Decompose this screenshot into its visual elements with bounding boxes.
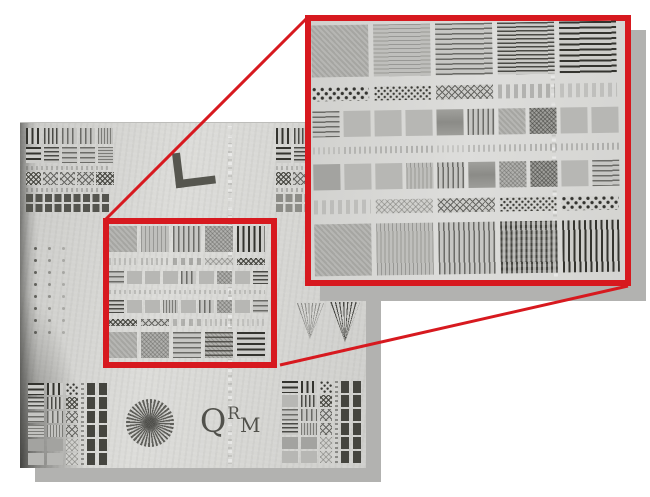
p-hlines-pattern (80, 147, 95, 163)
p-lattice-d-pattern (320, 395, 332, 407)
p-hbars-pattern (282, 423, 298, 435)
p-vlines-vf-pattern (406, 163, 433, 189)
inset-pattern-grid-row (313, 160, 625, 191)
p-hlines-f-pattern (28, 425, 44, 437)
p-noise-pattern (499, 161, 526, 187)
p-plain-pattern (343, 111, 370, 137)
p-dot-pattern (62, 271, 65, 274)
p-plain-pattern (344, 164, 371, 190)
p-textrow-pattern (344, 147, 371, 154)
p-lattice-pattern (43, 172, 58, 185)
p-dot-pattern (62, 307, 65, 310)
p-vlines-f-pattern (98, 128, 113, 144)
top-left-pattern-group-row (26, 128, 112, 144)
p-lattice-pattern (320, 423, 332, 435)
p-lattice-pattern (60, 172, 75, 185)
p-tick-pattern (335, 395, 338, 407)
p-dash-pattern (560, 83, 617, 98)
p-hbars-pattern (497, 22, 555, 75)
p-dot-pattern (34, 271, 37, 274)
p-lattice-pattern (66, 411, 78, 423)
p-pair-d-pattern (341, 395, 363, 407)
top-left-pattern-group-row (26, 188, 112, 192)
p-hbars-d-pattern (282, 381, 298, 393)
p-plain-d-pattern (28, 439, 44, 451)
p-hlines-pattern (435, 23, 493, 76)
p-dot-pattern (34, 247, 37, 250)
p-hbars-d-pattern (559, 21, 617, 74)
bottom-left-pattern-group-row (28, 439, 112, 451)
p-dot-pattern (62, 331, 65, 334)
p-textrow-pattern (313, 147, 340, 154)
p-vbars-pattern (44, 128, 59, 144)
p-plain-pattern (301, 451, 317, 463)
p-hlines-f-pattern (98, 147, 113, 163)
qrm-letter-r: R (227, 406, 240, 423)
p-dot-pattern (34, 331, 37, 334)
p-hlines-pattern (28, 411, 44, 423)
p-pair-d-pattern (87, 425, 109, 437)
p-dot-pattern (62, 319, 65, 322)
p-hbars-d-pattern (26, 147, 41, 163)
p-dot-pattern (62, 247, 65, 250)
qrm-letter-m: M (240, 415, 260, 435)
p-tick-pattern (335, 423, 338, 435)
p-sqrow-pattern (26, 194, 110, 202)
p-textrow-pattern (375, 146, 402, 153)
p-pair-d-pattern (341, 423, 363, 435)
p-dots-s-pattern (374, 86, 431, 101)
p-hlines-pattern (282, 409, 298, 421)
left-dot-column-row (34, 247, 74, 250)
top-left-pattern-group-row (26, 172, 112, 185)
p-dot-pattern (48, 271, 51, 274)
p-dot-pattern (48, 259, 51, 262)
p-blur-d-pattern (468, 162, 495, 188)
top-left-pattern-group-row (26, 147, 112, 163)
inset-pattern-grid-row (312, 107, 624, 138)
p-hbars-d-pattern (276, 147, 291, 163)
p-dot-pattern (62, 283, 65, 286)
p-lattice-d-pattern (96, 172, 114, 185)
inset-pattern-grid-row (314, 220, 627, 277)
p-vbars-pattern (301, 395, 317, 407)
p-tick-pattern (81, 411, 84, 423)
p-textrow-pattern (592, 143, 619, 150)
p-plain-pattern (561, 160, 588, 186)
p-tick-pattern (81, 425, 84, 437)
p-plain-pattern (405, 110, 432, 136)
highlight-rectangle (103, 218, 277, 368)
p-textrow-pattern (406, 146, 433, 153)
left-dot-column-row (34, 331, 74, 334)
p-dots-pattern (312, 87, 369, 102)
p-lattice-pattern (320, 409, 332, 421)
p-lattice-pattern (436, 85, 493, 100)
p-lattice-d-pattern (276, 172, 291, 185)
p-plain-n-pattern (498, 108, 525, 134)
bottom-right-pattern-group-row (282, 451, 366, 463)
p-vlines-pattern (301, 409, 317, 421)
p-plain-pattern (28, 453, 44, 465)
bottom-left-pattern-group-row (28, 453, 112, 465)
p-dots-s-pattern (320, 381, 332, 393)
p-dot-pattern (48, 307, 51, 310)
p-vlines-pattern (47, 411, 63, 423)
left-dot-column-row (34, 307, 74, 310)
p-textrow-pattern (561, 143, 588, 150)
bottom-right-pattern-group-row (282, 381, 366, 393)
p-vlines-vf-pattern (376, 223, 434, 276)
siemens-star-pattern (126, 399, 174, 447)
p-vlines-pattern (467, 109, 494, 135)
p-hbars-pattern (28, 397, 44, 409)
p-dot-pattern (34, 295, 37, 298)
top-left-pattern-group-row (26, 194, 112, 202)
p-lattice-d-pattern (26, 172, 41, 185)
p-plain-pattern (375, 163, 402, 189)
p-hbars-d-pattern (28, 383, 44, 395)
bottom-right-pattern-group (282, 381, 366, 465)
bottom-right-pattern-group-row (282, 423, 366, 435)
p-vbars-d-pattern (47, 383, 63, 395)
p-dot-pattern (34, 319, 37, 322)
p-vlines-pattern (80, 128, 95, 144)
p-lattice-f-pattern (320, 451, 332, 463)
p-blur-d-pattern (436, 109, 463, 135)
p-textrow-pattern (530, 144, 557, 151)
p-lattice-d-pattern (66, 397, 78, 409)
p-pair-d-pattern (341, 409, 363, 421)
p-plain-pattern (374, 110, 401, 136)
qrm-logo: Q R M (200, 405, 261, 437)
p-lattice-pattern (66, 425, 78, 437)
left-dot-column-row (34, 283, 74, 286)
p-dots-s-pattern (66, 383, 78, 395)
inset-pattern-grid (311, 21, 627, 282)
bottom-left-pattern-group-row (28, 425, 112, 437)
p-textrow-pattern (437, 145, 464, 152)
p-plain-pattern (560, 107, 587, 133)
p-tick-pattern (81, 453, 84, 465)
p-plain-n-pattern (314, 224, 372, 277)
bottom-right-pattern-group-row (282, 395, 366, 407)
p-tick-pattern (335, 409, 338, 421)
p-hlines-vf-pattern (373, 24, 431, 77)
p-hlines-pattern (592, 160, 619, 186)
p-textrow-pattern (26, 188, 106, 192)
p-hbars-pattern (44, 147, 59, 163)
inset-pattern-grid-row (311, 21, 624, 78)
p-lattice-f-pattern (66, 439, 78, 451)
p-tick-pattern (335, 437, 338, 449)
bottom-left-pattern-group-row (28, 397, 112, 409)
p-plain-n-pattern (311, 25, 369, 78)
p-lattice-pattern (438, 198, 495, 213)
p-vbars-d-pattern (276, 128, 291, 144)
p-lattice-f-pattern (376, 199, 433, 214)
inset-pattern-grid-row (314, 196, 626, 215)
inset-pattern-grid-row (312, 83, 624, 102)
top-left-pattern-group-row (26, 166, 112, 170)
figure-page: Q R M p (0, 0, 650, 497)
bottom-left-pattern-group (28, 383, 112, 467)
p-dash-pattern (314, 200, 371, 215)
left-dot-column-row (34, 319, 74, 322)
qrm-letter-q: Q (200, 405, 226, 437)
p-pair-d-pattern (341, 451, 363, 463)
p-lattice-f-pattern (320, 437, 332, 449)
p-dots-s-pattern (500, 197, 557, 212)
p-pair-d-pattern (87, 383, 109, 395)
p-hlines-pattern (312, 111, 339, 137)
p-sqrow-pattern (26, 204, 110, 212)
p-pair-d-pattern (87, 453, 109, 465)
left-dot-column-row (34, 271, 74, 274)
p-dot-pattern (48, 331, 51, 334)
p-dot-pattern (34, 283, 37, 286)
p-plain-pattern (47, 453, 63, 465)
p-tick-pattern (81, 383, 84, 395)
l-shape-marker (172, 149, 216, 189)
p-dot-pattern (62, 295, 65, 298)
p-vlines-pattern (438, 222, 496, 275)
p-lattice-pattern (77, 172, 94, 185)
p-textrow-pattern (499, 144, 526, 151)
p-vlines-f-pattern (47, 425, 63, 437)
p-pair-d-pattern (87, 439, 109, 451)
p-dot-pattern (48, 295, 51, 298)
p-dots-pattern (562, 196, 619, 211)
top-left-pattern-group-row (26, 204, 112, 212)
p-dot-pattern (34, 307, 37, 310)
p-vlines-pattern (62, 128, 77, 144)
p-tick-pattern (335, 451, 338, 463)
left-dot-column-row (34, 295, 74, 298)
inset-content (311, 21, 627, 282)
left-dot-column (34, 247, 74, 347)
p-plain-d-pattern (47, 439, 63, 451)
p-vbars-n-pattern (500, 221, 558, 274)
p-dot-pattern (48, 319, 51, 322)
bottom-left-pattern-group-row (28, 411, 112, 423)
p-noise-d-pattern (529, 108, 556, 134)
p-dot-pattern (48, 283, 51, 286)
top-left-pattern-group (26, 128, 112, 216)
p-pair-d-pattern (341, 381, 363, 393)
p-plain-pattern (282, 395, 298, 407)
p-plain-d-pattern (313, 164, 340, 190)
bottom-right-pattern-group-row (282, 437, 366, 449)
bottom-left-pattern-group-row (28, 383, 112, 395)
p-tick-pattern (81, 439, 84, 451)
p-pair-d-pattern (87, 397, 109, 409)
p-dot-pattern (34, 259, 37, 262)
p-pair-d-pattern (87, 411, 109, 423)
p-vlines-pattern (437, 162, 464, 188)
p-vbars-d-pattern (562, 220, 620, 273)
p-lattice-f-pattern (66, 453, 78, 465)
p-dash-pattern (498, 84, 555, 99)
p-plain-d-pattern (282, 437, 298, 449)
p-pair-d-pattern (341, 437, 363, 449)
p-textrow-pattern (26, 166, 110, 170)
p-tick-pattern (335, 381, 338, 393)
p-vbars-d-pattern (301, 381, 317, 393)
p-plain-pattern (591, 107, 618, 133)
p-tick-pattern (81, 397, 84, 409)
inset-pattern-grid-row (313, 143, 625, 155)
p-dot-pattern (48, 247, 51, 250)
p-noise-d-pattern (530, 161, 557, 187)
p-hlines-pattern (62, 147, 77, 163)
left-dot-column-row (34, 259, 74, 262)
p-plain-pattern (282, 451, 298, 463)
p-vlines-f-pattern (301, 423, 317, 435)
p-textrow-pattern (468, 145, 495, 152)
p-vbars-d-pattern (26, 128, 41, 144)
p-dot-pattern (62, 259, 65, 262)
p-plain-d-pattern (301, 437, 317, 449)
bottom-right-pattern-group-row (282, 409, 366, 421)
p-vbars-pattern (47, 397, 63, 409)
magnified-inset (305, 15, 631, 286)
